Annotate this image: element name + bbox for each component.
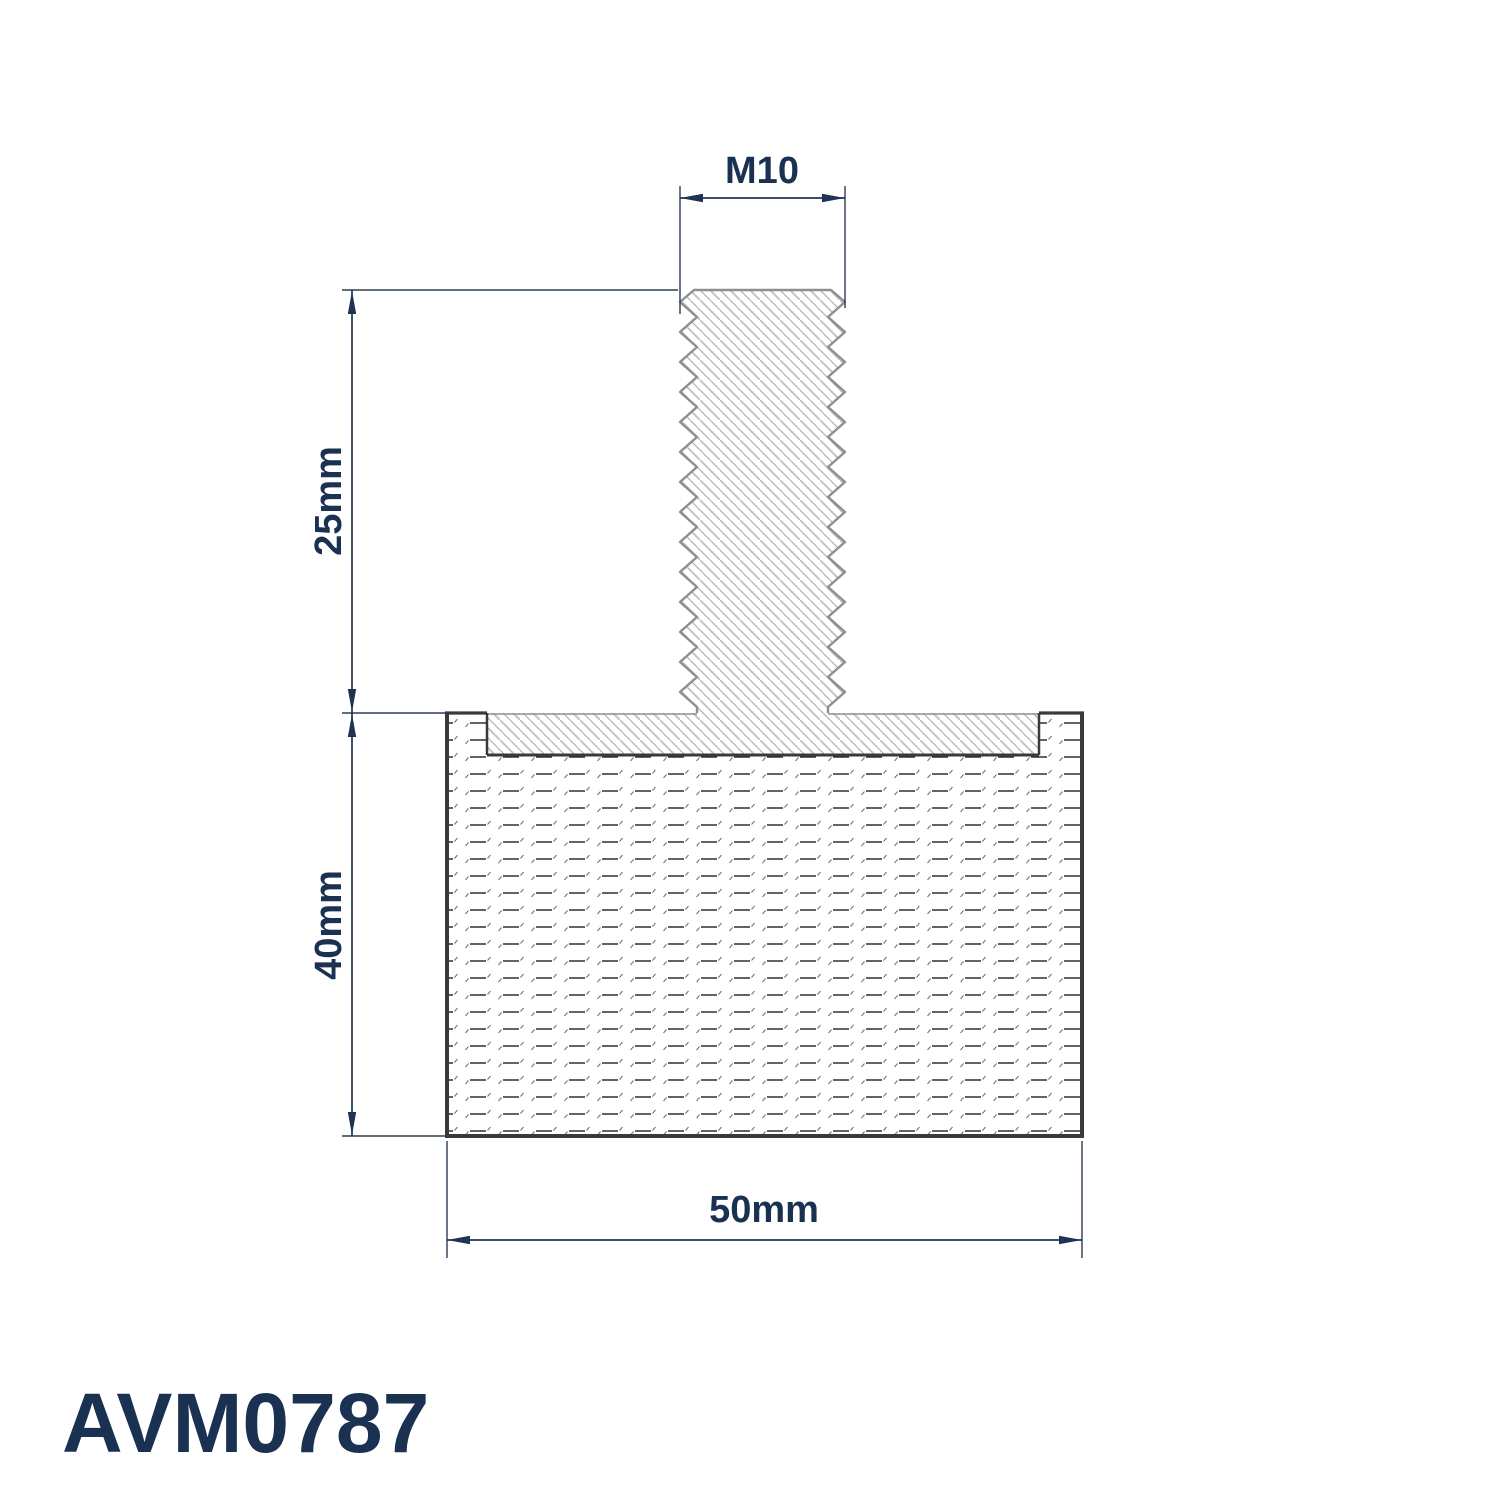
dimension-label-body-diameter: 50mm <box>709 1189 819 1231</box>
metal-plate-section <box>487 713 1039 755</box>
metal-plate <box>487 713 1039 755</box>
dimension-body-diameter: 50mm <box>447 1141 1082 1258</box>
threaded-stud-section <box>680 290 845 713</box>
dimension-label-thread-size: M10 <box>725 150 799 192</box>
arrowhead-up-icon <box>348 714 356 737</box>
rubber-body <box>445 713 1084 1136</box>
arrowhead-right-icon <box>822 194 845 202</box>
dimension-label-body-height: 40mm <box>308 870 350 980</box>
dimension-label-stud-length: 25mm <box>308 446 350 556</box>
arrowhead-down-icon <box>348 689 356 712</box>
arrowhead-right-icon <box>1059 1236 1082 1244</box>
dimension-body-height: 40mm <box>308 713 447 1136</box>
arrowhead-up-icon <box>348 291 356 314</box>
arrowhead-left-icon <box>447 1236 470 1244</box>
arrowhead-down-icon <box>348 1112 356 1135</box>
rubber-body-section <box>447 713 1082 1136</box>
extension-lines-25mm <box>342 290 678 713</box>
threaded-stud <box>680 290 845 713</box>
part-number-label: AVM0787 <box>62 1376 429 1470</box>
dimension-stud-length: 25mm <box>308 290 678 713</box>
technical-drawing-canvas: M10 25mm 40mm 50mm AVM0787 <box>0 0 1500 1500</box>
arrowhead-left-icon <box>680 194 703 202</box>
